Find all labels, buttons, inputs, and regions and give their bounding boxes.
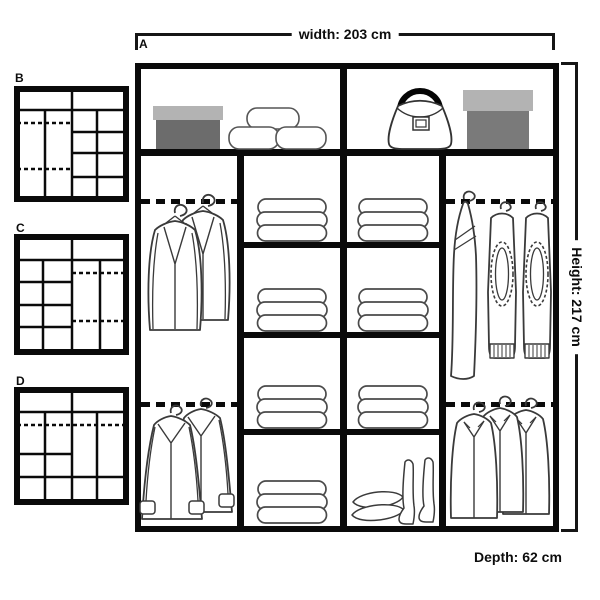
column-divider-3 [439,156,446,526]
storage-cushions-icon [228,107,327,150]
folded-clothes-stack [357,288,429,332]
shelf-board [244,332,340,338]
folded-clothes-stack [256,385,328,429]
hanging-jackets-icon [142,190,236,342]
width-bracket-right-tick [552,33,555,50]
height-bracket-top-tick [561,62,578,65]
variant-a-label: A [139,37,148,51]
top-shelf-board [135,149,559,156]
column-divider-2 [340,156,347,526]
top-shelf-divider [340,69,347,149]
width-bracket-left-tick [135,33,138,50]
shelf-board [244,242,340,248]
hanging-shirts-icon [446,394,554,525]
wardrobe-diagram: width: 203 cm Height: 217 cm Depth: 62 c… [0,0,600,600]
depth-dimension-label: Depth: 62 cm [474,549,562,565]
variant-d-diagram [14,387,129,505]
boots-icon [398,459,440,526]
folded-clothes-stack [256,288,328,332]
storage-box-icon [462,90,534,149]
variant-d-label: D [16,374,25,388]
shelf-board [347,429,439,435]
variant-c-diagram [14,234,129,355]
shoebox-icon [152,106,224,149]
hanging-dress-and-jeans-icon [448,190,554,386]
column-divider-1 [237,156,244,526]
folded-clothes-stack [357,385,429,429]
variant-b-label: B [15,71,24,85]
shelf-board [347,332,439,338]
variant-b-diagram [14,86,129,202]
folded-clothes-stack [357,198,429,242]
folded-clothes-stack [256,198,328,242]
width-dimension-label: width: 203 cm [292,26,399,42]
height-bracket-bottom-tick [561,529,578,532]
height-dimension-label: Height: 217 cm [569,240,585,354]
shelf-board [244,429,340,435]
hanging-coats-icon [140,394,236,525]
folded-clothes-stack [256,480,328,524]
variant-c-label: C [16,221,25,235]
shelf-board [347,242,439,248]
handbag-icon [384,84,456,149]
